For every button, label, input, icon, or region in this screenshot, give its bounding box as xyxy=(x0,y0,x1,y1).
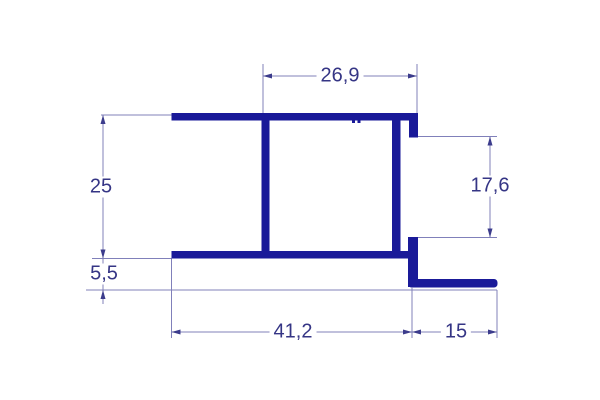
profile-left-wall xyxy=(262,113,270,259)
arrow-left-height-down-icon xyxy=(101,250,106,259)
extension-lines xyxy=(86,64,497,338)
dim-label-bottom-width: 41,2 xyxy=(270,322,317,343)
profile-detail-dot xyxy=(352,121,355,124)
dim-label-bottom-offset: 5,5 xyxy=(86,264,122,285)
dim-label-right-opening: 17,6 xyxy=(467,176,514,197)
dim-label-top-width: 26,9 xyxy=(317,66,364,87)
arrow-bottom-width-left-icon xyxy=(172,330,181,335)
arrow-top-width-left-icon xyxy=(263,74,272,79)
profile-detail-dot xyxy=(358,121,361,124)
arrow-top-width-right-icon xyxy=(408,74,417,79)
dimension-arrows xyxy=(101,74,498,335)
profile-shape xyxy=(172,113,498,288)
profile-right-wall xyxy=(392,113,401,259)
profile-bottom-bar xyxy=(172,251,409,259)
technical-drawing-canvas: 26,9 25 17,6 5,5 41,2 15 xyxy=(0,0,600,400)
arrow-bottom-width-right-icon xyxy=(403,330,412,335)
arrow-flange-width-left-icon xyxy=(412,330,421,335)
dim-label-left-height: 25 xyxy=(86,177,116,198)
dim-label-flange-width: 15 xyxy=(441,322,471,343)
arrow-left-height-up-icon xyxy=(101,115,106,124)
arrow-right-opening-down-icon xyxy=(488,229,493,238)
arrow-bottom-offset-up-icon xyxy=(101,290,106,299)
arrow-right-opening-up-icon xyxy=(488,137,493,146)
profile-top-right-lip xyxy=(409,113,418,138)
profile-top-bar xyxy=(172,113,419,121)
profile-bottom-flange xyxy=(408,279,498,288)
arrow-flange-width-right-icon xyxy=(488,330,497,335)
